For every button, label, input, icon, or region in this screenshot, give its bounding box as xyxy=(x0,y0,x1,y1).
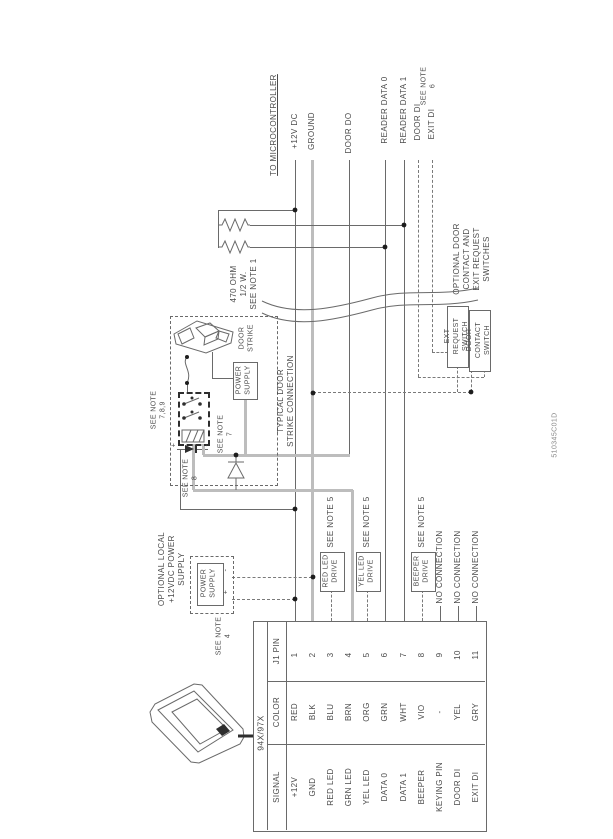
diode-note7 xyxy=(228,463,244,478)
resistor2-zigzag xyxy=(218,241,250,253)
resistor1-zigzag xyxy=(218,219,250,231)
wiring-diagram-page: 94X/97X J1 PIN COLOR SIGNAL 1RED+12V2BLK… xyxy=(0,0,613,839)
cable-break-wave-lower xyxy=(262,300,478,322)
cable-break-wave-upper xyxy=(262,288,478,310)
strike-flex-wire xyxy=(185,357,188,383)
diode-note8 xyxy=(185,445,194,453)
junction-dots xyxy=(185,208,473,602)
diagram-shapes xyxy=(0,0,613,839)
